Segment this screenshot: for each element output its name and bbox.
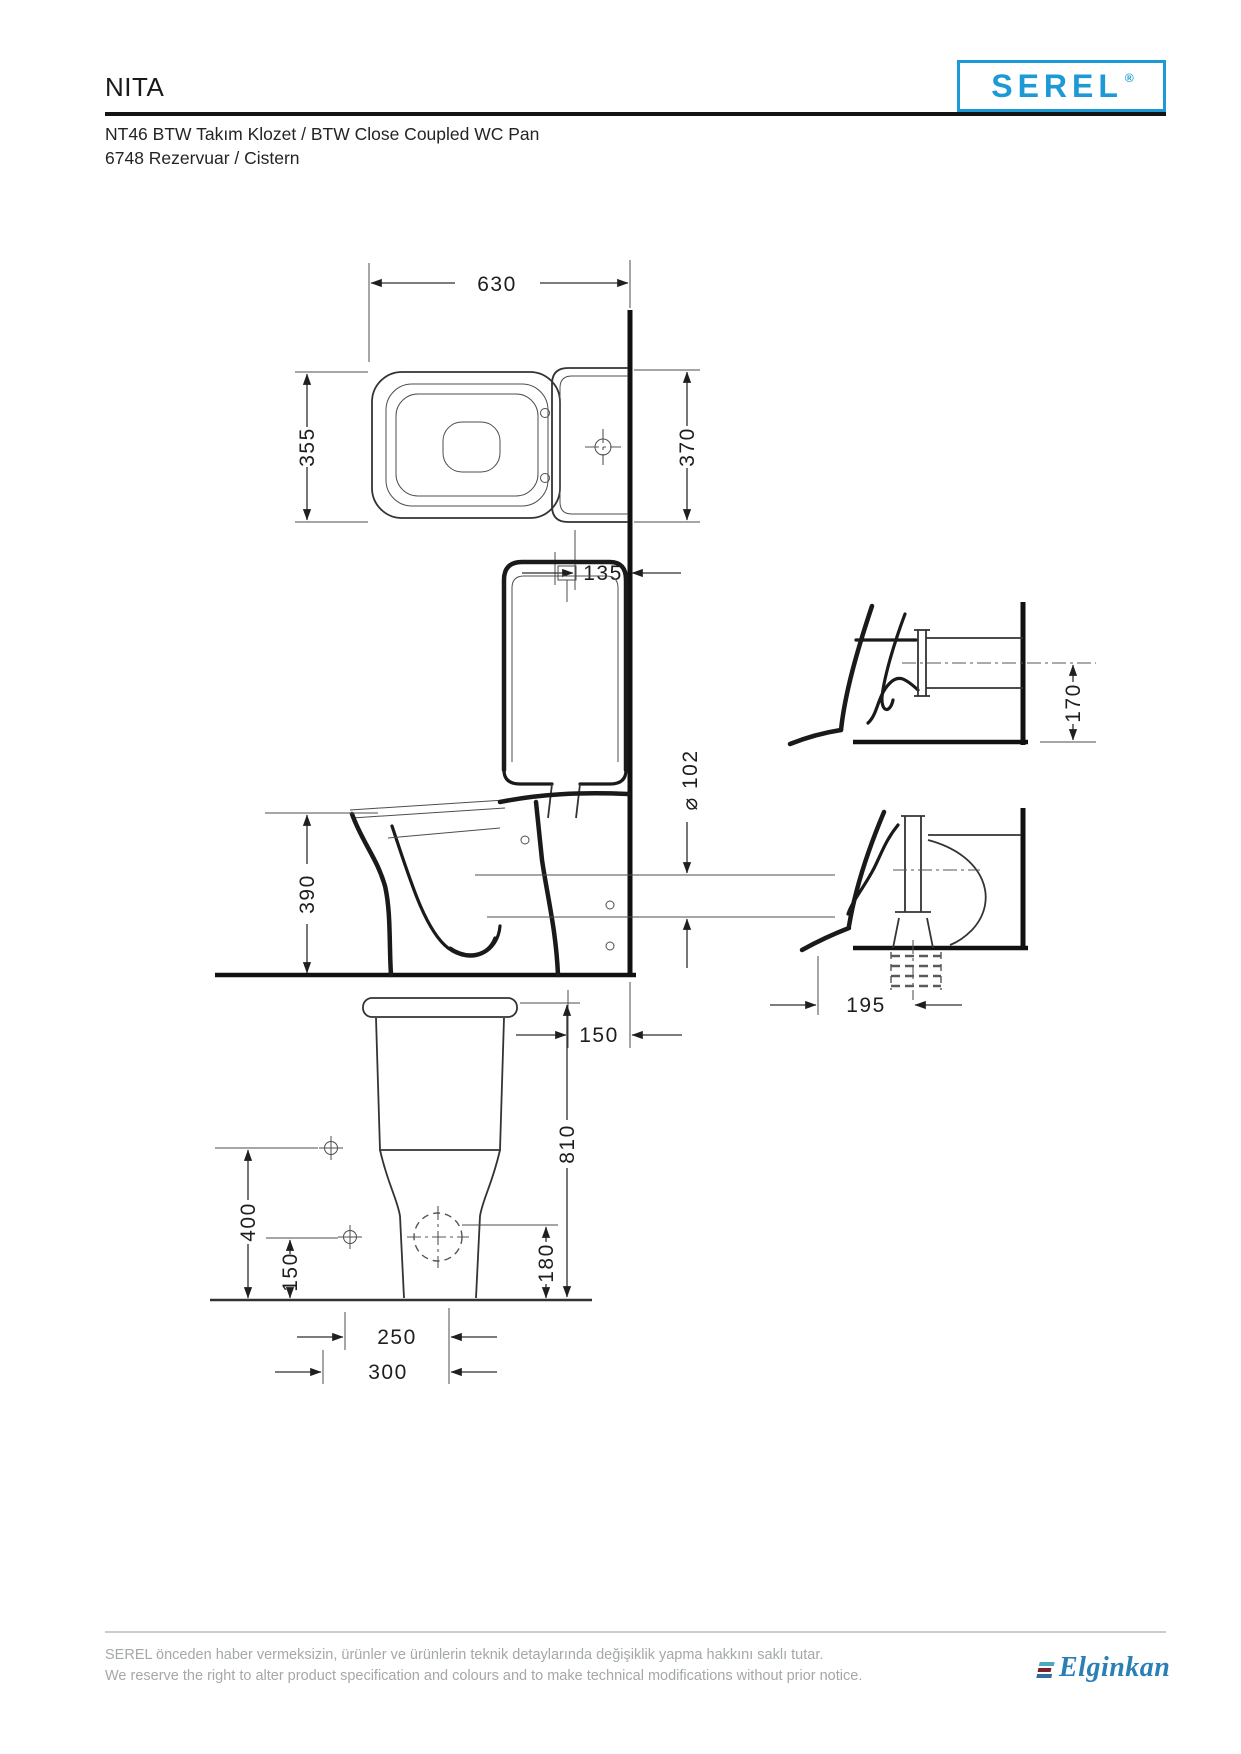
cistern-inner-outline xyxy=(560,376,628,514)
pedestal-right xyxy=(476,1150,500,1298)
dim-rim-height-label: 390 xyxy=(296,874,319,914)
pedestal-left xyxy=(380,1150,404,1298)
serel-logo: SEREL® xyxy=(957,60,1166,112)
detail-horizontal-outlet: 170 xyxy=(790,602,1096,745)
dim-outlet-center-distance-label: 195 xyxy=(846,994,886,1017)
technical-drawing: 630 355 370 13 xyxy=(0,200,1241,1460)
cistern-crosshair-icon xyxy=(585,429,621,465)
dim-outlet-center-height-label: 170 xyxy=(1062,683,1085,723)
cistern-section xyxy=(504,562,626,770)
model-subtitle: NT46 BTW Takım Klozet / BTW Close Couple… xyxy=(105,122,539,170)
dim-pan-width: 355 xyxy=(295,372,368,522)
footer-disclaimer-tr: SEREL önceden haber vermeksizin, ürünler… xyxy=(105,1645,862,1666)
page-title: NITA xyxy=(105,72,164,103)
dim-total-height-label: 810 xyxy=(556,1124,579,1164)
dim-outlet-center-height-front: 150 xyxy=(266,1238,338,1298)
fixing-point-icon xyxy=(319,1136,343,1160)
bowl-rear-platform xyxy=(500,793,628,802)
spec-sheet-page: NITA SEREL® NT46 BTW Takım Klozet / BTW … xyxy=(0,0,1241,1754)
footer-rule xyxy=(105,1631,1166,1633)
registered-mark: ® xyxy=(1125,71,1134,85)
dim-inlet-height-label: 180 xyxy=(535,1243,558,1283)
dim-pan-width-label: 355 xyxy=(296,427,319,467)
cistern-outline xyxy=(552,368,628,522)
dim-outlet-center-height: 170 xyxy=(1040,665,1096,742)
dim-overall-length: 630 xyxy=(369,260,630,362)
dim-fixing-span-outer: 300 xyxy=(275,1350,497,1384)
floor-outlet-hatch xyxy=(891,952,941,990)
dim-outlet-diameter-label: ⌀ 102 xyxy=(679,749,702,810)
bowl-opening xyxy=(443,422,500,472)
fixing-hole xyxy=(606,901,614,909)
detail-vertical-outlet: 195 xyxy=(770,808,1028,1017)
elginkan-logo: Elginkan xyxy=(1038,1652,1170,1684)
dim-fixing-height: 400 xyxy=(215,1148,318,1298)
bowl-rear-profile xyxy=(536,802,558,975)
bowl-front-profile xyxy=(352,814,391,975)
bowl-interior xyxy=(392,826,500,956)
serel-logo-text: SEREL xyxy=(991,70,1123,102)
cistern-front xyxy=(376,1018,504,1150)
dim-fixing-span-inner-label: 250 xyxy=(377,1326,417,1349)
footer-disclaimer-en: We reserve the right to alter product sp… xyxy=(105,1666,862,1687)
dim-cistern-width: 370 xyxy=(634,370,700,522)
cistern-lid xyxy=(363,998,517,1017)
fixing-hole xyxy=(606,942,614,950)
footer-disclaimer: SEREL önceden haber vermeksizin, ürünler… xyxy=(105,1645,862,1687)
seat-inner-outline xyxy=(396,394,538,496)
dim-outlet-diameter: ⌀ 102 xyxy=(679,749,702,968)
elginkan-logo-text: Elginkan xyxy=(1059,1652,1170,1684)
header-rule xyxy=(105,112,1166,116)
model-subtitle-line2: 6748 Rezervuar / Cistern xyxy=(105,146,539,170)
front-view: 810 400 150 180 xyxy=(210,998,592,1384)
dim-outlet-floor-distance-label: 150 xyxy=(579,1024,619,1047)
dim-overall-length-label: 630 xyxy=(477,273,517,296)
elginkan-bars-icon xyxy=(1036,1662,1054,1678)
dim-cistern-width-label: 370 xyxy=(676,427,699,467)
dim-fixing-height-label: 400 xyxy=(237,1202,260,1242)
dim-outlet-center-height-front-label: 150 xyxy=(279,1252,302,1292)
section-view: 390 ⌀ 102 150 xyxy=(215,562,835,1048)
model-subtitle-line1: NT46 BTW Takım Klozet / BTW Close Couple… xyxy=(105,122,539,146)
seat-outline xyxy=(386,384,548,506)
dim-fixing-span-outer-label: 300 xyxy=(368,1361,408,1384)
fixing-point-icon xyxy=(338,1225,362,1249)
plan-view: 630 355 370 13 xyxy=(295,260,700,590)
dim-outlet-floor-distance: 150 xyxy=(516,982,682,1048)
